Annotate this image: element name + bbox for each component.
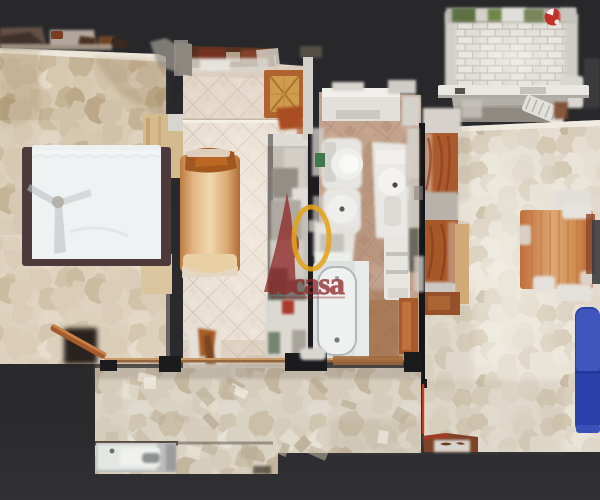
svg-text:iocasa: iocasa	[269, 266, 345, 301]
